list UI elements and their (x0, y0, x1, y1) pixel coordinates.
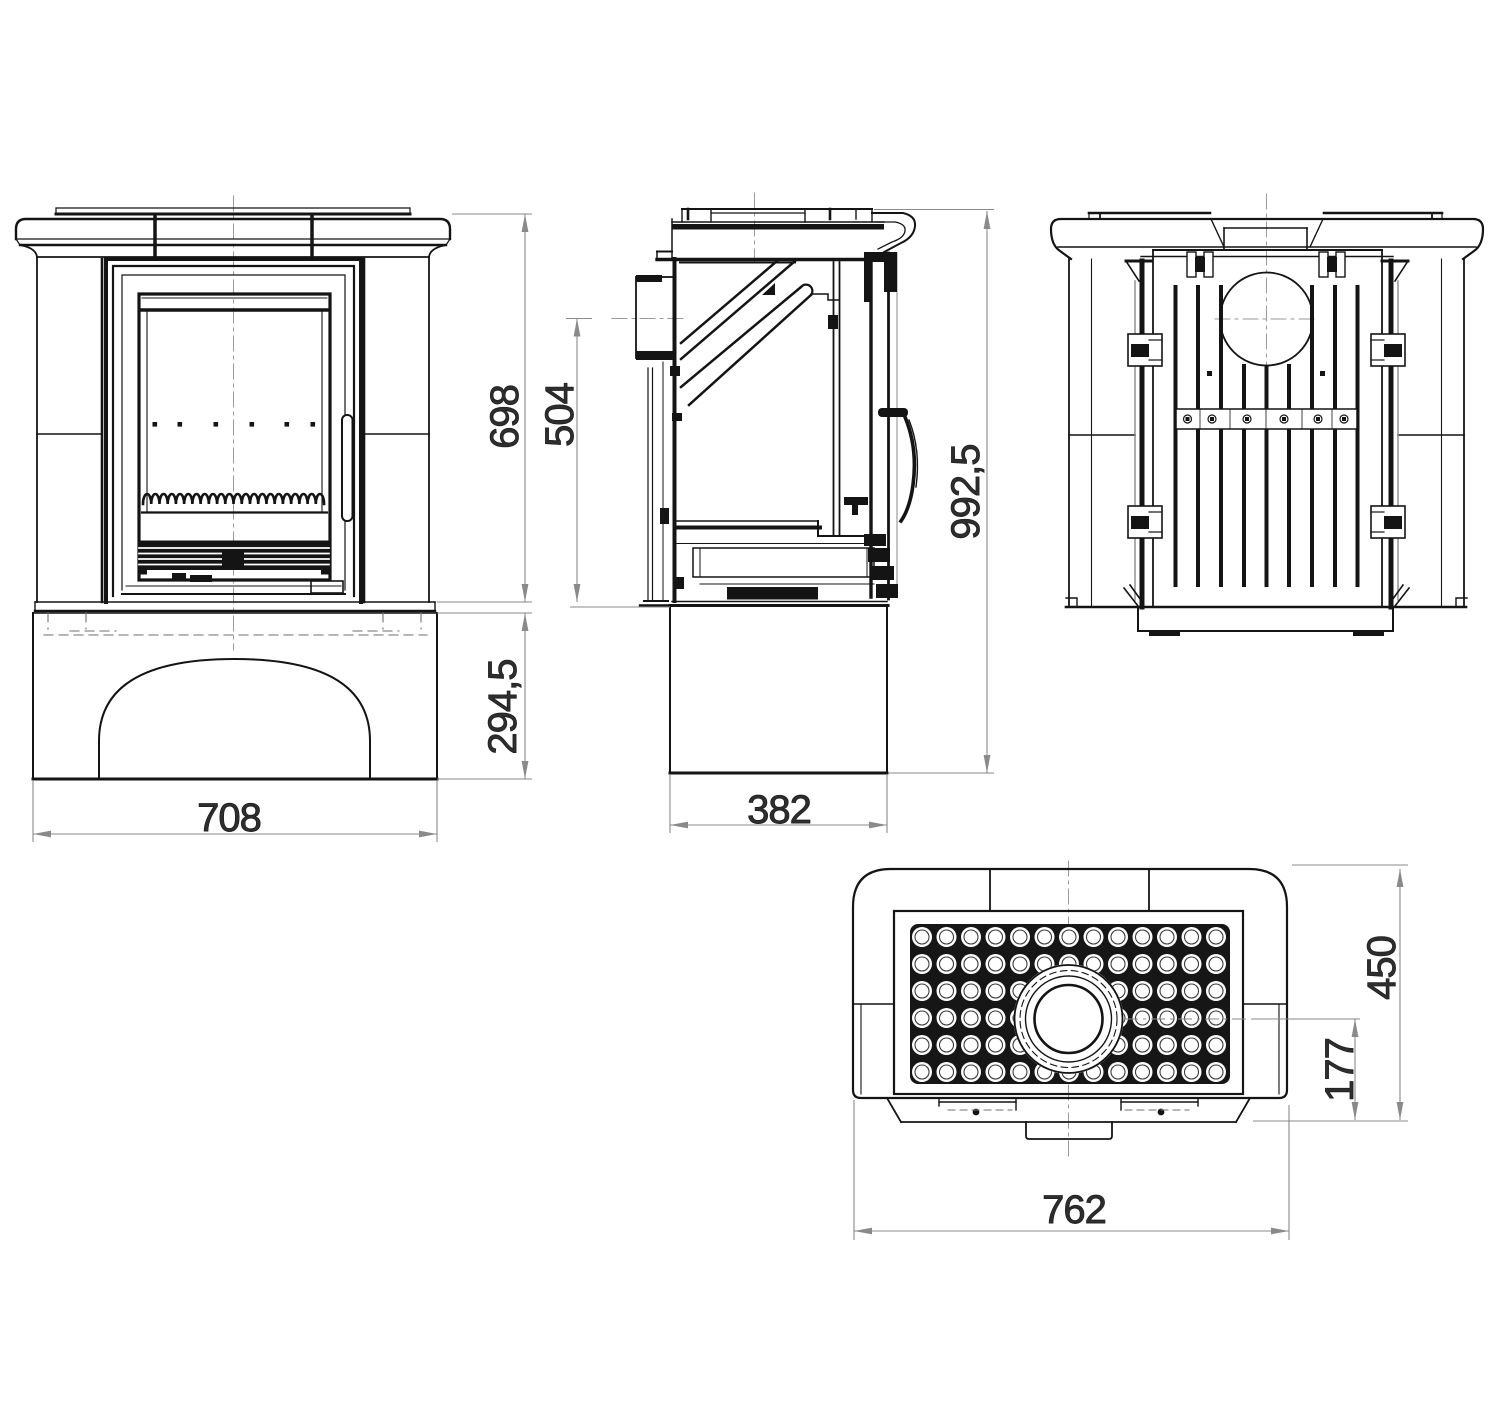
svg-text:450: 450 (1360, 936, 1404, 1000)
svg-text:708: 708 (197, 796, 261, 840)
svg-text:177: 177 (1318, 1038, 1362, 1102)
svg-text:504: 504 (538, 382, 582, 446)
svg-text:992,5: 992,5 (944, 444, 988, 539)
svg-text:294,5: 294,5 (481, 659, 525, 754)
svg-text:382: 382 (747, 788, 811, 832)
svg-text:762: 762 (1042, 1188, 1106, 1232)
svg-text:698: 698 (483, 385, 527, 449)
